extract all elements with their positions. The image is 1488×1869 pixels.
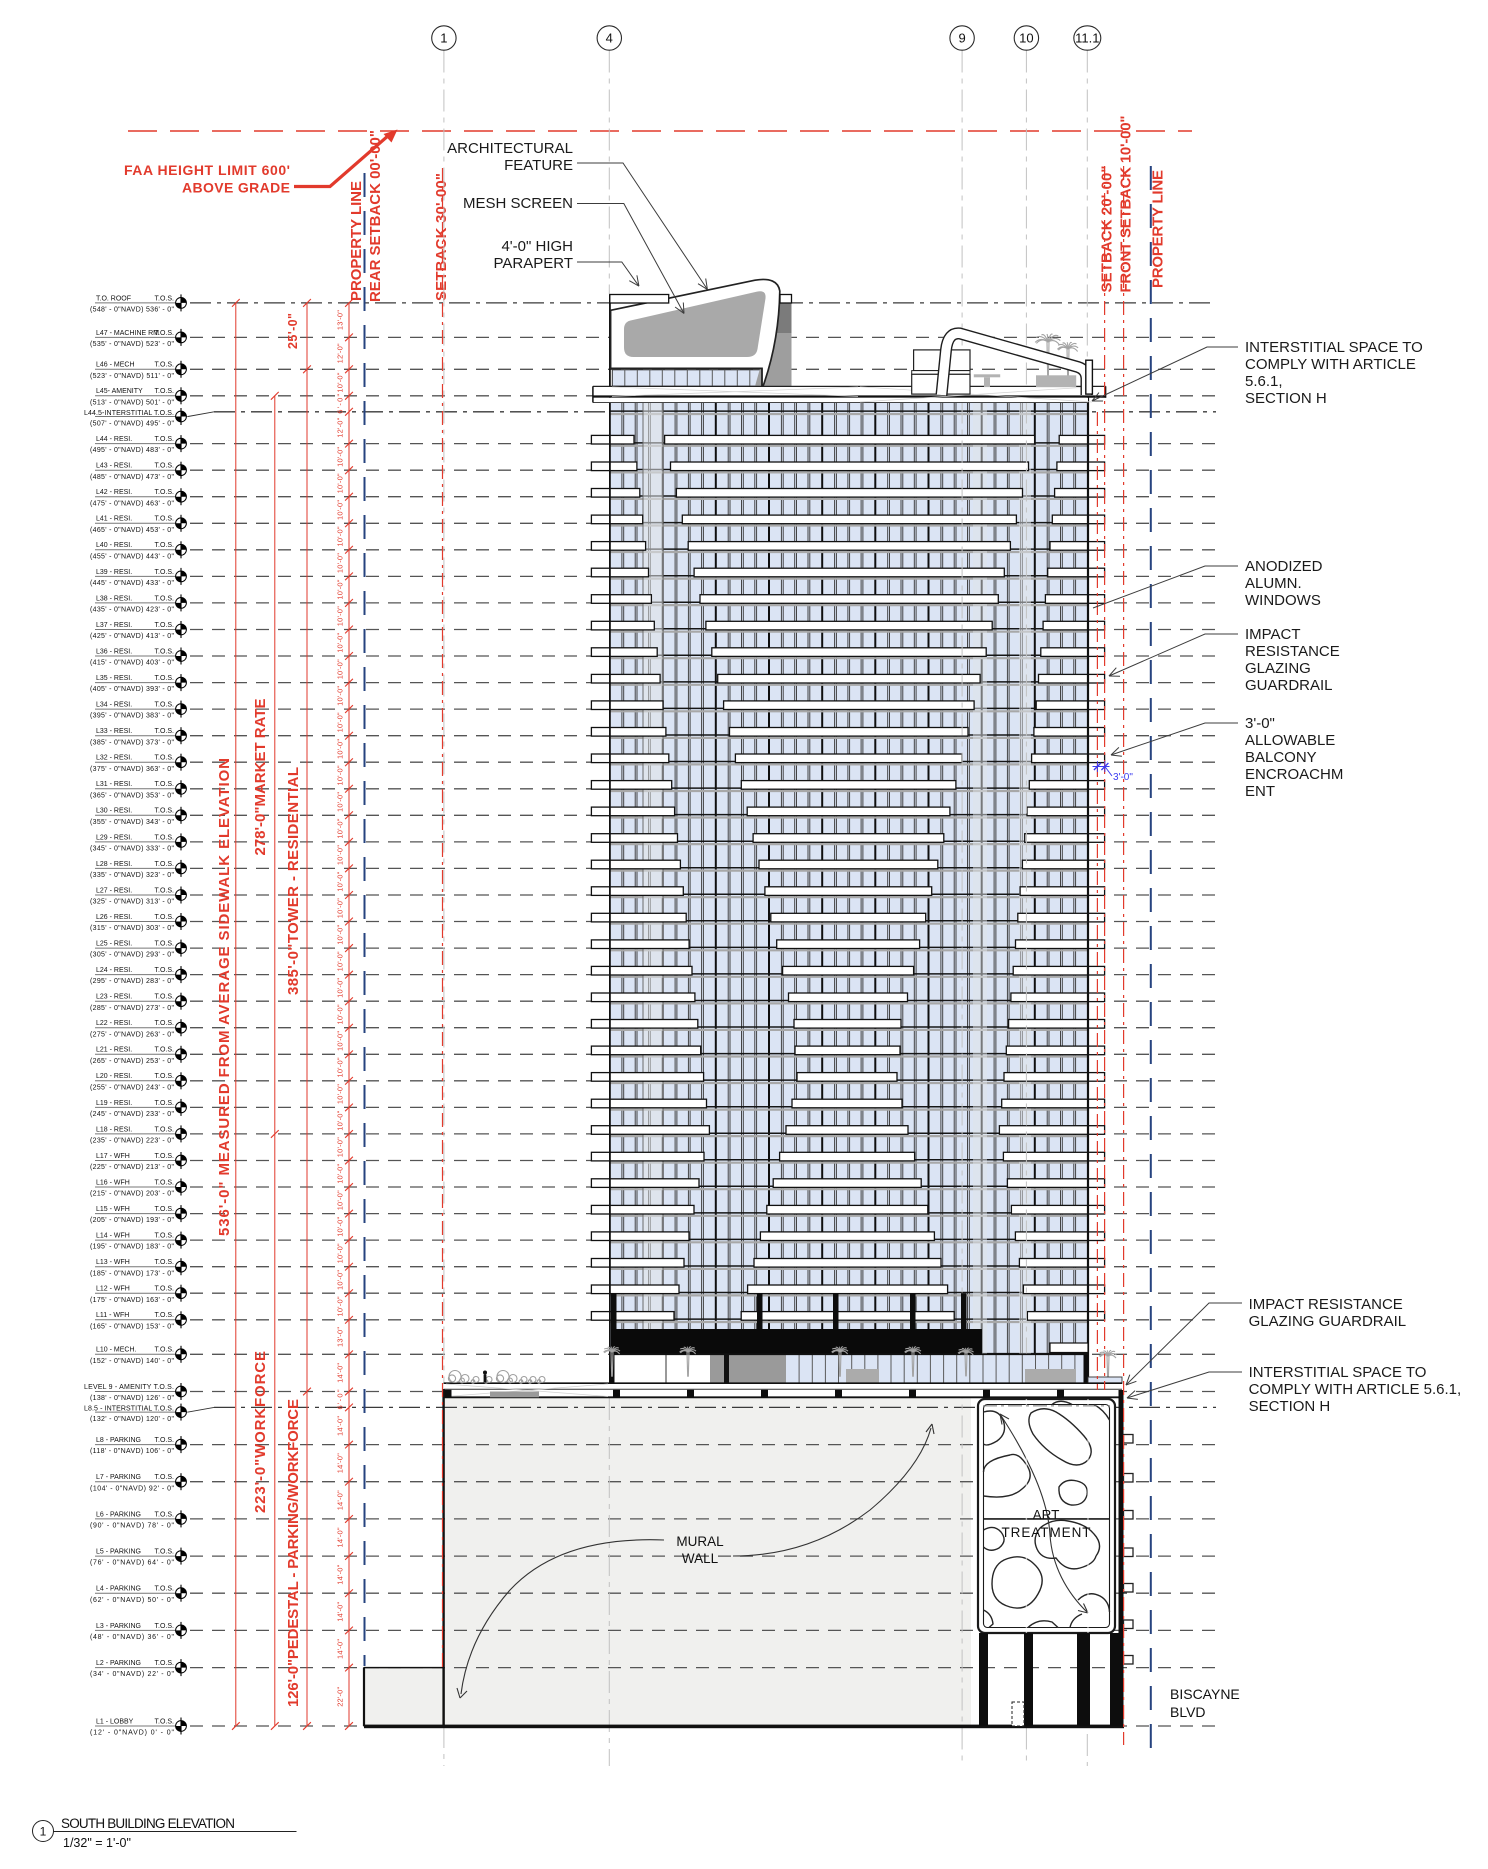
svg-text:L40 - RESI.: L40 - RESI. — [96, 542, 132, 549]
svg-text:(152' - 0"NAVD) 140' - 0": (152' - 0"NAVD) 140' - 0" — [90, 1358, 175, 1365]
svg-text:6'-0": 6'-0" — [336, 393, 345, 413]
svg-text:10'-0": 10'-0" — [336, 845, 345, 865]
svg-text:L23 - RESI.: L23 - RESI. — [96, 994, 132, 1001]
svg-text:T.O.S.: T.O.S. — [155, 388, 175, 395]
svg-text:MURAL: MURAL — [676, 1534, 724, 1549]
svg-text:T.O.S.: T.O.S. — [155, 914, 175, 921]
svg-text:T.O.S.: T.O.S. — [155, 1100, 175, 1107]
svg-text:(415' - 0"NAVD) 403' - 0": (415' - 0"NAVD) 403' - 0" — [90, 660, 175, 667]
svg-text:T.O.S.: T.O.S. — [155, 1073, 175, 1080]
svg-text:L45- AMENITY: L45- AMENITY — [96, 388, 143, 395]
svg-text:T.O.S.: T.O.S. — [155, 728, 175, 735]
svg-text:(215' - 0"NAVD) 203' - 0": (215' - 0"NAVD) 203' - 0" — [90, 1191, 175, 1198]
svg-text:3'-0": 3'-0" — [1113, 772, 1133, 783]
svg-text:(62' - 0"NAVD) 50' - 0": (62' - 0"NAVD) 50' - 0" — [90, 1597, 175, 1604]
svg-text:COMPLY WITH ARTICLE: COMPLY WITH ARTICLE — [1245, 356, 1416, 373]
svg-text:10: 10 — [1019, 31, 1033, 46]
svg-text:L47 - MACHINE RM: L47 - MACHINE RM — [96, 330, 159, 337]
svg-text:(445' - 0"NAVD) 433' - 0": (445' - 0"NAVD) 433' - 0" — [90, 580, 175, 587]
svg-text:L3 - PARKING: L3 - PARKING — [96, 1623, 141, 1630]
svg-text:T.O.S.: T.O.S. — [155, 295, 175, 302]
svg-text:L7 - PARKING: L7 - PARKING — [96, 1474, 141, 1481]
svg-text:5.6.1,: 5.6.1, — [1245, 373, 1283, 390]
svg-text:T.O.S.: T.O.S. — [155, 1259, 175, 1266]
svg-text:(205' - 0"NAVD) 193' - 0": (205' - 0"NAVD) 193' - 0" — [90, 1217, 175, 1224]
svg-text:L44.5-INTERSTITIAL T.O.S.: L44.5-INTERSTITIAL T.O.S. — [84, 410, 174, 417]
svg-text:T.O.S.: T.O.S. — [155, 994, 175, 1001]
svg-text:L26 - RESI.: L26 - RESI. — [96, 914, 132, 921]
svg-text:14'-0": 14'-0" — [336, 1564, 345, 1584]
svg-text:4: 4 — [606, 31, 613, 46]
svg-text:T.O.S.: T.O.S. — [155, 781, 175, 788]
svg-text:(265' - 0"NAVD) 253' - 0": (265' - 0"NAVD) 253' - 0" — [90, 1058, 175, 1065]
svg-text:10'-0": 10'-0" — [336, 739, 345, 759]
svg-text:SOUTH BUILDING ELEVATION: SOUTH BUILDING ELEVATION — [61, 1816, 235, 1831]
svg-text:(475' - 0"NAVD) 463' - 0": (475' - 0"NAVD) 463' - 0" — [90, 500, 175, 507]
svg-text:(325' - 0"NAVD) 313' - 0": (325' - 0"NAVD) 313' - 0" — [90, 899, 175, 906]
svg-text:10'-0": 10'-0" — [336, 526, 345, 546]
svg-text:(523' - 0"NAVD) 511' - 0": (523' - 0"NAVD) 511' - 0" — [90, 373, 175, 380]
svg-text:4'-0" HIGH: 4'-0" HIGH — [501, 238, 573, 255]
svg-text:10'-0": 10'-0" — [336, 818, 345, 838]
svg-text:T.O.S.: T.O.S. — [155, 1286, 175, 1293]
svg-text:(12' - 0"NAVD) 0' - 0": (12' - 0"NAVD) 0' - 0" — [90, 1730, 175, 1737]
svg-text:T.O.S.: T.O.S. — [155, 1047, 175, 1054]
svg-text:(285' - 0"NAVD) 273' - 0": (285' - 0"NAVD) 273' - 0" — [90, 1005, 175, 1012]
svg-text:L20 - RESI.: L20 - RESI. — [96, 1073, 132, 1080]
svg-text:PROPERTY LINE: PROPERTY LINE — [1149, 170, 1166, 288]
svg-text:(76' - 0"NAVD) 64' - 0": (76' - 0"NAVD) 64' - 0" — [90, 1560, 175, 1567]
svg-text:L8.5 - INTERSTITIAL T.O.S.: L8.5 - INTERSTITIAL T.O.S. — [84, 1406, 174, 1413]
svg-text:FRONT SETBACK 10'-00": FRONT SETBACK 10'-00" — [1118, 116, 1135, 293]
svg-text:L2 - PARKING: L2 - PARKING — [96, 1660, 141, 1667]
svg-text:14'-0": 14'-0" — [336, 1416, 345, 1436]
svg-text:T.O.S.: T.O.S. — [155, 1347, 175, 1354]
svg-text:(132' - 0"NAVD) 120' - 0": (132' - 0"NAVD) 120' - 0" — [90, 1416, 175, 1423]
svg-text:(548' - 0"NAVD) 536' - 0": (548' - 0"NAVD) 536' - 0" — [90, 307, 175, 314]
svg-text:PROPERTY LINE: PROPERTY LINE — [348, 181, 365, 301]
svg-text:(375' - 0"NAVD) 363' - 0": (375' - 0"NAVD) 363' - 0" — [90, 766, 175, 773]
svg-text:T.O.S.: T.O.S. — [155, 362, 175, 369]
svg-text:T.O.S.: T.O.S. — [155, 887, 175, 894]
svg-text:L17 - WFH: L17 - WFH — [96, 1153, 130, 1160]
svg-text:10'-0": 10'-0" — [336, 1216, 345, 1236]
svg-text:IMPACT RESISTANCE: IMPACT RESISTANCE — [1249, 1296, 1403, 1313]
svg-text:ENT: ENT — [1245, 783, 1275, 800]
svg-text:9: 9 — [958, 31, 965, 46]
svg-text:T.O.S.: T.O.S. — [155, 1126, 175, 1133]
svg-text:(507' - 0"NAVD) 495' - 0": (507' - 0"NAVD) 495' - 0" — [90, 421, 175, 428]
svg-text:(235' - 0"NAVD) 223' - 0": (235' - 0"NAVD) 223' - 0" — [90, 1138, 175, 1145]
svg-text:L43 - RESI.: L43 - RESI. — [96, 463, 132, 470]
svg-text:BISCAYNE: BISCAYNE — [1170, 1686, 1240, 1702]
svg-text:(118' - 0"NAVD) 106' - 0": (118' - 0"NAVD) 106' - 0" — [90, 1448, 175, 1455]
svg-text:SETBACK 20'-00": SETBACK 20'-00" — [1099, 166, 1116, 293]
svg-text:(185' - 0"NAVD) 173' - 0": (185' - 0"NAVD) 173' - 0" — [90, 1270, 175, 1277]
svg-text:T.O.S.: T.O.S. — [155, 675, 175, 682]
svg-text:T.O.S.: T.O.S. — [155, 1233, 175, 1240]
svg-text:T.O.S.: T.O.S. — [155, 1660, 175, 1667]
svg-text:(275' - 0"NAVD) 263' - 0": (275' - 0"NAVD) 263' - 0" — [90, 1031, 175, 1038]
svg-text:T.O.S.: T.O.S. — [155, 1437, 175, 1444]
svg-text:(435' - 0"NAVD) 423' - 0": (435' - 0"NAVD) 423' - 0" — [90, 607, 175, 614]
svg-text:10'-0": 10'-0" — [336, 606, 345, 626]
svg-text:10'-0": 10'-0" — [336, 1004, 345, 1024]
svg-text:L21 - RESI.: L21 - RESI. — [96, 1047, 132, 1054]
svg-text:(335' - 0"NAVD) 323' - 0": (335' - 0"NAVD) 323' - 0" — [90, 872, 175, 879]
svg-text:GLAZING: GLAZING — [1245, 660, 1311, 677]
svg-text:T.O.S.: T.O.S. — [155, 1179, 175, 1186]
svg-text:11.1: 11.1 — [1075, 31, 1099, 46]
svg-text:10'-0": 10'-0" — [336, 1296, 345, 1316]
svg-text:(385' - 0"NAVD) 373' - 0": (385' - 0"NAVD) 373' - 0" — [90, 739, 175, 746]
svg-text:SECTION H: SECTION H — [1245, 390, 1327, 407]
svg-text:L18 - RESI.: L18 - RESI. — [96, 1126, 132, 1133]
svg-text:(34' - 0"NAVD) 22' - 0": (34' - 0"NAVD) 22' - 0" — [90, 1671, 175, 1678]
svg-text:T.O.S.: T.O.S. — [155, 1511, 175, 1518]
svg-text:12'-0": 12'-0" — [336, 417, 345, 437]
svg-text:(535' - 0"NAVD) 523' - 0": (535' - 0"NAVD) 523' - 0" — [90, 341, 175, 348]
svg-text:(195' - 0"NAVD) 183' - 0": (195' - 0"NAVD) 183' - 0" — [90, 1244, 175, 1251]
svg-text:14'-0": 14'-0" — [336, 1639, 345, 1659]
svg-text:WALL: WALL — [682, 1551, 719, 1566]
svg-text:T.O.S.: T.O.S. — [155, 1153, 175, 1160]
svg-text:L27 - RESI.: L27 - RESI. — [96, 887, 132, 894]
svg-text:10'-0": 10'-0" — [336, 792, 345, 812]
svg-text:10'-0": 10'-0" — [336, 686, 345, 706]
svg-text:14'-0": 14'-0" — [336, 1527, 345, 1547]
svg-text:13'-0": 13'-0" — [336, 310, 345, 330]
svg-text:1/32" = 1'-0": 1/32" = 1'-0" — [63, 1836, 131, 1850]
svg-text:223'-0"WORKFORCE: 223'-0"WORKFORCE — [252, 1351, 269, 1513]
svg-text:(395' - 0"NAVD) 383' - 0": (395' - 0"NAVD) 383' - 0" — [90, 713, 175, 720]
svg-text:T.O.S.: T.O.S. — [155, 622, 175, 629]
svg-text:(165' - 0"NAVD) 153' - 0": (165' - 0"NAVD) 153' - 0" — [90, 1323, 175, 1330]
svg-text:GUARDRAIL: GUARDRAIL — [1245, 677, 1333, 694]
svg-text:T.O.S.: T.O.S. — [155, 595, 175, 602]
svg-text:REAR SETBACK 00'-00": REAR SETBACK 00'-00" — [367, 130, 384, 302]
svg-text:L24 - RESI.: L24 - RESI. — [96, 967, 132, 974]
svg-text:T.O.S.: T.O.S. — [155, 330, 175, 337]
svg-text:L8 - PARKING: L8 - PARKING — [96, 1437, 141, 1444]
svg-text:GLAZING GUARDRAIL: GLAZING GUARDRAIL — [1249, 1313, 1407, 1330]
svg-text:WINDOWS: WINDOWS — [1245, 592, 1321, 609]
svg-text:T.O.S.: T.O.S. — [155, 1586, 175, 1593]
svg-text:L36 - RESI.: L36 - RESI. — [96, 648, 132, 655]
svg-text:T.O.S.: T.O.S. — [155, 834, 175, 841]
svg-text:SETBACK 30'-00": SETBACK 30'-00" — [433, 173, 450, 301]
svg-text:10'-0": 10'-0" — [336, 447, 345, 467]
svg-text:INTERSTITIAL SPACE TO: INTERSTITIAL SPACE TO — [1249, 1364, 1427, 1381]
svg-text:10'-0": 10'-0" — [336, 1243, 345, 1263]
svg-text:L19 - RESI.: L19 - RESI. — [96, 1100, 132, 1107]
svg-text:10'-0": 10'-0" — [336, 1031, 345, 1051]
svg-text:LEVEL 9 - AMENITY T.O.S.: LEVEL 9 - AMENITY T.O.S. — [84, 1384, 174, 1391]
svg-text:L31 - RESI.: L31 - RESI. — [96, 781, 132, 788]
svg-text:(225' - 0"NAVD) 213' - 0": (225' - 0"NAVD) 213' - 0" — [90, 1164, 175, 1171]
svg-text:22'-0": 22'-0" — [336, 1686, 345, 1706]
svg-text:10'-0": 10'-0" — [336, 871, 345, 891]
svg-text:COMPLY WITH ARTICLE 5.6.1,: COMPLY WITH ARTICLE 5.6.1, — [1249, 1381, 1462, 1398]
svg-text:10'-0": 10'-0" — [336, 473, 345, 493]
svg-text:L30 - RESI.: L30 - RESI. — [96, 808, 132, 815]
svg-text:L39 - RESI.: L39 - RESI. — [96, 569, 132, 576]
svg-text:L16 - WFH: L16 - WFH — [96, 1179, 130, 1186]
svg-text:SECTION H: SECTION H — [1249, 1398, 1331, 1415]
svg-text:IMPACT: IMPACT — [1245, 626, 1301, 643]
svg-text:T.O.S.: T.O.S. — [155, 569, 175, 576]
svg-text:L38 - RESI.: L38 - RESI. — [96, 595, 132, 602]
svg-text:L32 - RESI.: L32 - RESI. — [96, 755, 132, 762]
svg-text:(315' - 0"NAVD) 303' - 0": (315' - 0"NAVD) 303' - 0" — [90, 925, 175, 932]
svg-text:BLVD: BLVD — [1170, 1704, 1206, 1720]
svg-text:(245' - 0"NAVD) 233' - 0": (245' - 0"NAVD) 233' - 0" — [90, 1111, 175, 1118]
svg-text:10'-0": 10'-0" — [336, 712, 345, 732]
svg-text:10'-0": 10'-0" — [336, 500, 345, 520]
svg-text:L4 - PARKING: L4 - PARKING — [96, 1586, 141, 1593]
svg-text:536'-0" MEASURED FROM AVERAGE: 536'-0" MEASURED FROM AVERAGE SIDEWALK E… — [216, 758, 233, 1236]
svg-text:(175' - 0"NAVD) 163' - 0": (175' - 0"NAVD) 163' - 0" — [90, 1297, 175, 1304]
svg-text:14'-0": 14'-0" — [336, 1601, 345, 1621]
svg-text:T.O.S.: T.O.S. — [155, 516, 175, 523]
svg-text:10'-0": 10'-0" — [336, 951, 345, 971]
svg-text:L10 - MECH.: L10 - MECH. — [96, 1347, 137, 1354]
svg-text:14'-0": 14'-0" — [336, 1363, 345, 1383]
svg-text:T.O.S.: T.O.S. — [155, 967, 175, 974]
svg-text:278'-0"MARKET RATE: 278'-0"MARKET RATE — [252, 699, 269, 856]
svg-text:(355' - 0"NAVD) 343' - 0": (355' - 0"NAVD) 343' - 0" — [90, 819, 175, 826]
svg-text:L15 - WFH: L15 - WFH — [96, 1206, 130, 1213]
svg-text:T.O.S.: T.O.S. — [155, 489, 175, 496]
svg-text:10'-0": 10'-0" — [336, 579, 345, 599]
svg-text:L29 - RESI.: L29 - RESI. — [96, 834, 132, 841]
svg-text:L5 - PARKING: L5 - PARKING — [96, 1549, 141, 1556]
svg-text:(365' - 0"NAVD) 353' - 0": (365' - 0"NAVD) 353' - 0" — [90, 792, 175, 799]
svg-text:10'-0": 10'-0" — [336, 1190, 345, 1210]
svg-text:L11 - WFH: L11 - WFH — [96, 1312, 129, 1319]
svg-text:(455' - 0"NAVD) 443' - 0": (455' - 0"NAVD) 443' - 0" — [90, 553, 175, 560]
svg-text:(513' - 0"NAVD) 501' - 0": (513' - 0"NAVD) 501' - 0" — [90, 399, 175, 406]
svg-text:10'-0": 10'-0" — [336, 978, 345, 998]
svg-text:(465' - 0"NAVD) 453' - 0": (465' - 0"NAVD) 453' - 0" — [90, 527, 175, 534]
svg-text:(485' - 0"NAVD) 473' - 0": (485' - 0"NAVD) 473' - 0" — [90, 474, 175, 481]
svg-text:ALUMN.: ALUMN. — [1245, 575, 1302, 592]
svg-text:BALCONY: BALCONY — [1245, 749, 1317, 766]
svg-text:(425' - 0"NAVD) 413' - 0": (425' - 0"NAVD) 413' - 0" — [90, 633, 175, 640]
svg-text:T.O.S.: T.O.S. — [155, 648, 175, 655]
svg-text:T.O.S.: T.O.S. — [155, 1020, 175, 1027]
svg-text:25'-0": 25'-0" — [286, 313, 300, 349]
svg-text:RESISTANCE: RESISTANCE — [1245, 643, 1340, 660]
svg-text:(295' - 0"NAVD) 283' - 0": (295' - 0"NAVD) 283' - 0" — [90, 978, 175, 985]
svg-text:10'-0": 10'-0" — [336, 1163, 345, 1183]
svg-text:L22 - RESI.: L22 - RESI. — [96, 1020, 132, 1027]
svg-text:10'-0": 10'-0" — [336, 1057, 345, 1077]
svg-text:T.O.S.: T.O.S. — [155, 463, 175, 470]
svg-text:T.O.S.: T.O.S. — [155, 861, 175, 868]
svg-text:L35 - RESI.: L35 - RESI. — [96, 675, 132, 682]
svg-text:(405' - 0"NAVD) 393' - 0": (405' - 0"NAVD) 393' - 0" — [90, 686, 175, 693]
svg-text:10'-0": 10'-0" — [336, 898, 345, 918]
svg-text:T.O.S.: T.O.S. — [155, 808, 175, 815]
svg-text:T.O.S.: T.O.S. — [155, 1206, 175, 1213]
svg-text:INTERSTITIAL SPACE TO: INTERSTITIAL SPACE TO — [1245, 339, 1423, 356]
svg-text:T.O. ROOF: T.O. ROOF — [96, 295, 131, 302]
svg-text:(305' - 0"NAVD) 293' - 0": (305' - 0"NAVD) 293' - 0" — [90, 952, 175, 959]
svg-text:T.O.S.: T.O.S. — [155, 1623, 175, 1630]
svg-text:10'-0": 10'-0" — [336, 1110, 345, 1130]
svg-text:L46 - MECH: L46 - MECH — [96, 362, 135, 369]
svg-text:10'-0": 10'-0" — [336, 924, 345, 944]
svg-text:10'-0": 10'-0" — [336, 632, 345, 652]
svg-text:10'-0": 10'-0" — [336, 765, 345, 785]
svg-text:PARAPERT: PARAPERT — [494, 255, 573, 272]
svg-text:(104' - 0"NAVD) 92' - 0": (104' - 0"NAVD) 92' - 0" — [90, 1485, 175, 1492]
svg-text:ABOVE GRADE: ABOVE GRADE — [182, 180, 290, 196]
svg-text:(495' - 0"NAVD) 483' - 0": (495' - 0"NAVD) 483' - 0" — [90, 447, 175, 454]
svg-text:(90' - 0"NAVD) 78' - 0": (90' - 0"NAVD) 78' - 0" — [90, 1523, 175, 1530]
svg-text:L13 - WFH: L13 - WFH — [96, 1259, 130, 1266]
svg-text:(345' - 0"NAVD) 333' - 0": (345' - 0"NAVD) 333' - 0" — [90, 846, 175, 853]
svg-text:T.O.S.: T.O.S. — [155, 1718, 175, 1725]
svg-text:FEATURE: FEATURE — [504, 157, 573, 174]
svg-text:L34 - RESI.: L34 - RESI. — [96, 702, 132, 709]
svg-text:T.O.S.: T.O.S. — [155, 1549, 175, 1556]
svg-text:10'-0": 10'-0" — [336, 1084, 345, 1104]
svg-text:13'-0": 13'-0" — [336, 1327, 345, 1347]
svg-text:L44 - RESI.: L44 - RESI. — [96, 436, 132, 443]
svg-text:L14 - WFH: L14 - WFH — [96, 1233, 130, 1240]
svg-text:T.O.S.: T.O.S. — [155, 941, 175, 948]
svg-text:T.O.S.: T.O.S. — [155, 702, 175, 709]
svg-text:10'-0": 10'-0" — [336, 372, 345, 392]
svg-text:T.O.S.: T.O.S. — [155, 542, 175, 549]
svg-text:1: 1 — [440, 31, 447, 46]
svg-text:L12 - WFH: L12 - WFH — [96, 1286, 130, 1293]
svg-text:ART: ART — [1033, 1508, 1060, 1523]
svg-text:6'-0": 6'-0" — [336, 1389, 345, 1409]
svg-text:(138' - 0"NAVD) 126' - 0": (138' - 0"NAVD) 126' - 0" — [90, 1395, 175, 1402]
svg-text:L25 - RESI.: L25 - RESI. — [96, 941, 132, 948]
svg-text:TREATMENT: TREATMENT — [1002, 1525, 1091, 1540]
svg-text:ENCROACHM: ENCROACHM — [1245, 766, 1343, 783]
svg-text:1: 1 — [40, 1825, 47, 1839]
svg-text:(255' - 0"NAVD) 243' - 0": (255' - 0"NAVD) 243' - 0" — [90, 1084, 175, 1091]
svg-text:L41 - RESI.: L41 - RESI. — [96, 516, 132, 523]
svg-text:L37 - RESI.: L37 - RESI. — [96, 622, 132, 629]
svg-text:126'-0"PEDESTAL - PARKING/WORK: 126'-0"PEDESTAL - PARKING/WORKFORCE — [285, 1399, 302, 1707]
svg-text:14'-0": 14'-0" — [336, 1490, 345, 1510]
svg-text:(48' - 0"NAVD) 36' - 0": (48' - 0"NAVD) 36' - 0" — [90, 1634, 175, 1641]
svg-text:3'-0": 3'-0" — [1245, 715, 1275, 732]
svg-text:L6 - PARKING: L6 - PARKING — [96, 1511, 141, 1518]
svg-text:ARCHITECTURAL: ARCHITECTURAL — [447, 140, 573, 157]
svg-text:385'-0"TOWER - RESIDENTIAL: 385'-0"TOWER - RESIDENTIAL — [285, 767, 302, 995]
svg-text:12'-0": 12'-0" — [336, 343, 345, 363]
svg-text:10'-0": 10'-0" — [336, 659, 345, 679]
svg-text:T.O.S.: T.O.S. — [155, 1474, 175, 1481]
svg-text:ANODIZED: ANODIZED — [1245, 558, 1323, 575]
svg-text:T.O.S.: T.O.S. — [155, 1312, 175, 1319]
svg-text:14'-0": 14'-0" — [336, 1453, 345, 1473]
svg-text:L33 - RESI.: L33 - RESI. — [96, 728, 132, 735]
svg-text:FAA HEIGHT LIMIT 600': FAA HEIGHT LIMIT 600' — [124, 162, 290, 178]
svg-text:10'-0": 10'-0" — [336, 1137, 345, 1157]
svg-text:T.O.S.: T.O.S. — [155, 436, 175, 443]
svg-text:10'-0": 10'-0" — [336, 1270, 345, 1290]
svg-text:L1 - LOBBY: L1 - LOBBY — [96, 1718, 134, 1725]
svg-text:10'-0": 10'-0" — [336, 553, 345, 573]
svg-text:ALLOWABLE: ALLOWABLE — [1245, 732, 1335, 749]
svg-text:L42 - RESI.: L42 - RESI. — [96, 489, 132, 496]
svg-text:T.O.S.: T.O.S. — [155, 755, 175, 762]
svg-text:MESH SCREEN: MESH SCREEN — [463, 195, 573, 212]
svg-text:L28 - RESI.: L28 - RESI. — [96, 861, 132, 868]
